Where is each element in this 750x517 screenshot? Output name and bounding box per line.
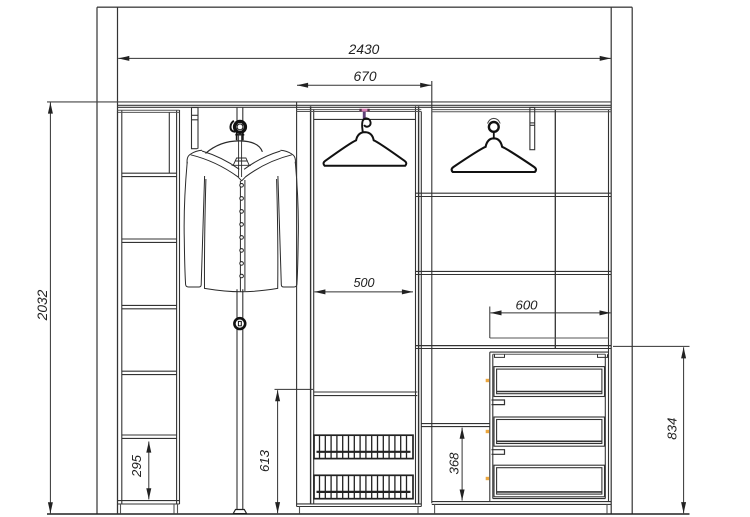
svg-text:600: 600 bbox=[515, 298, 538, 313]
svg-text:500: 500 bbox=[353, 276, 374, 290]
svg-text:2430: 2430 bbox=[348, 42, 380, 57]
svg-text:613: 613 bbox=[257, 449, 272, 472]
svg-text:368: 368 bbox=[447, 452, 462, 475]
svg-text:295: 295 bbox=[129, 454, 144, 478]
svg-text:670: 670 bbox=[353, 69, 376, 84]
svg-text:834: 834 bbox=[665, 418, 680, 440]
svg-text:2032: 2032 bbox=[35, 289, 50, 321]
